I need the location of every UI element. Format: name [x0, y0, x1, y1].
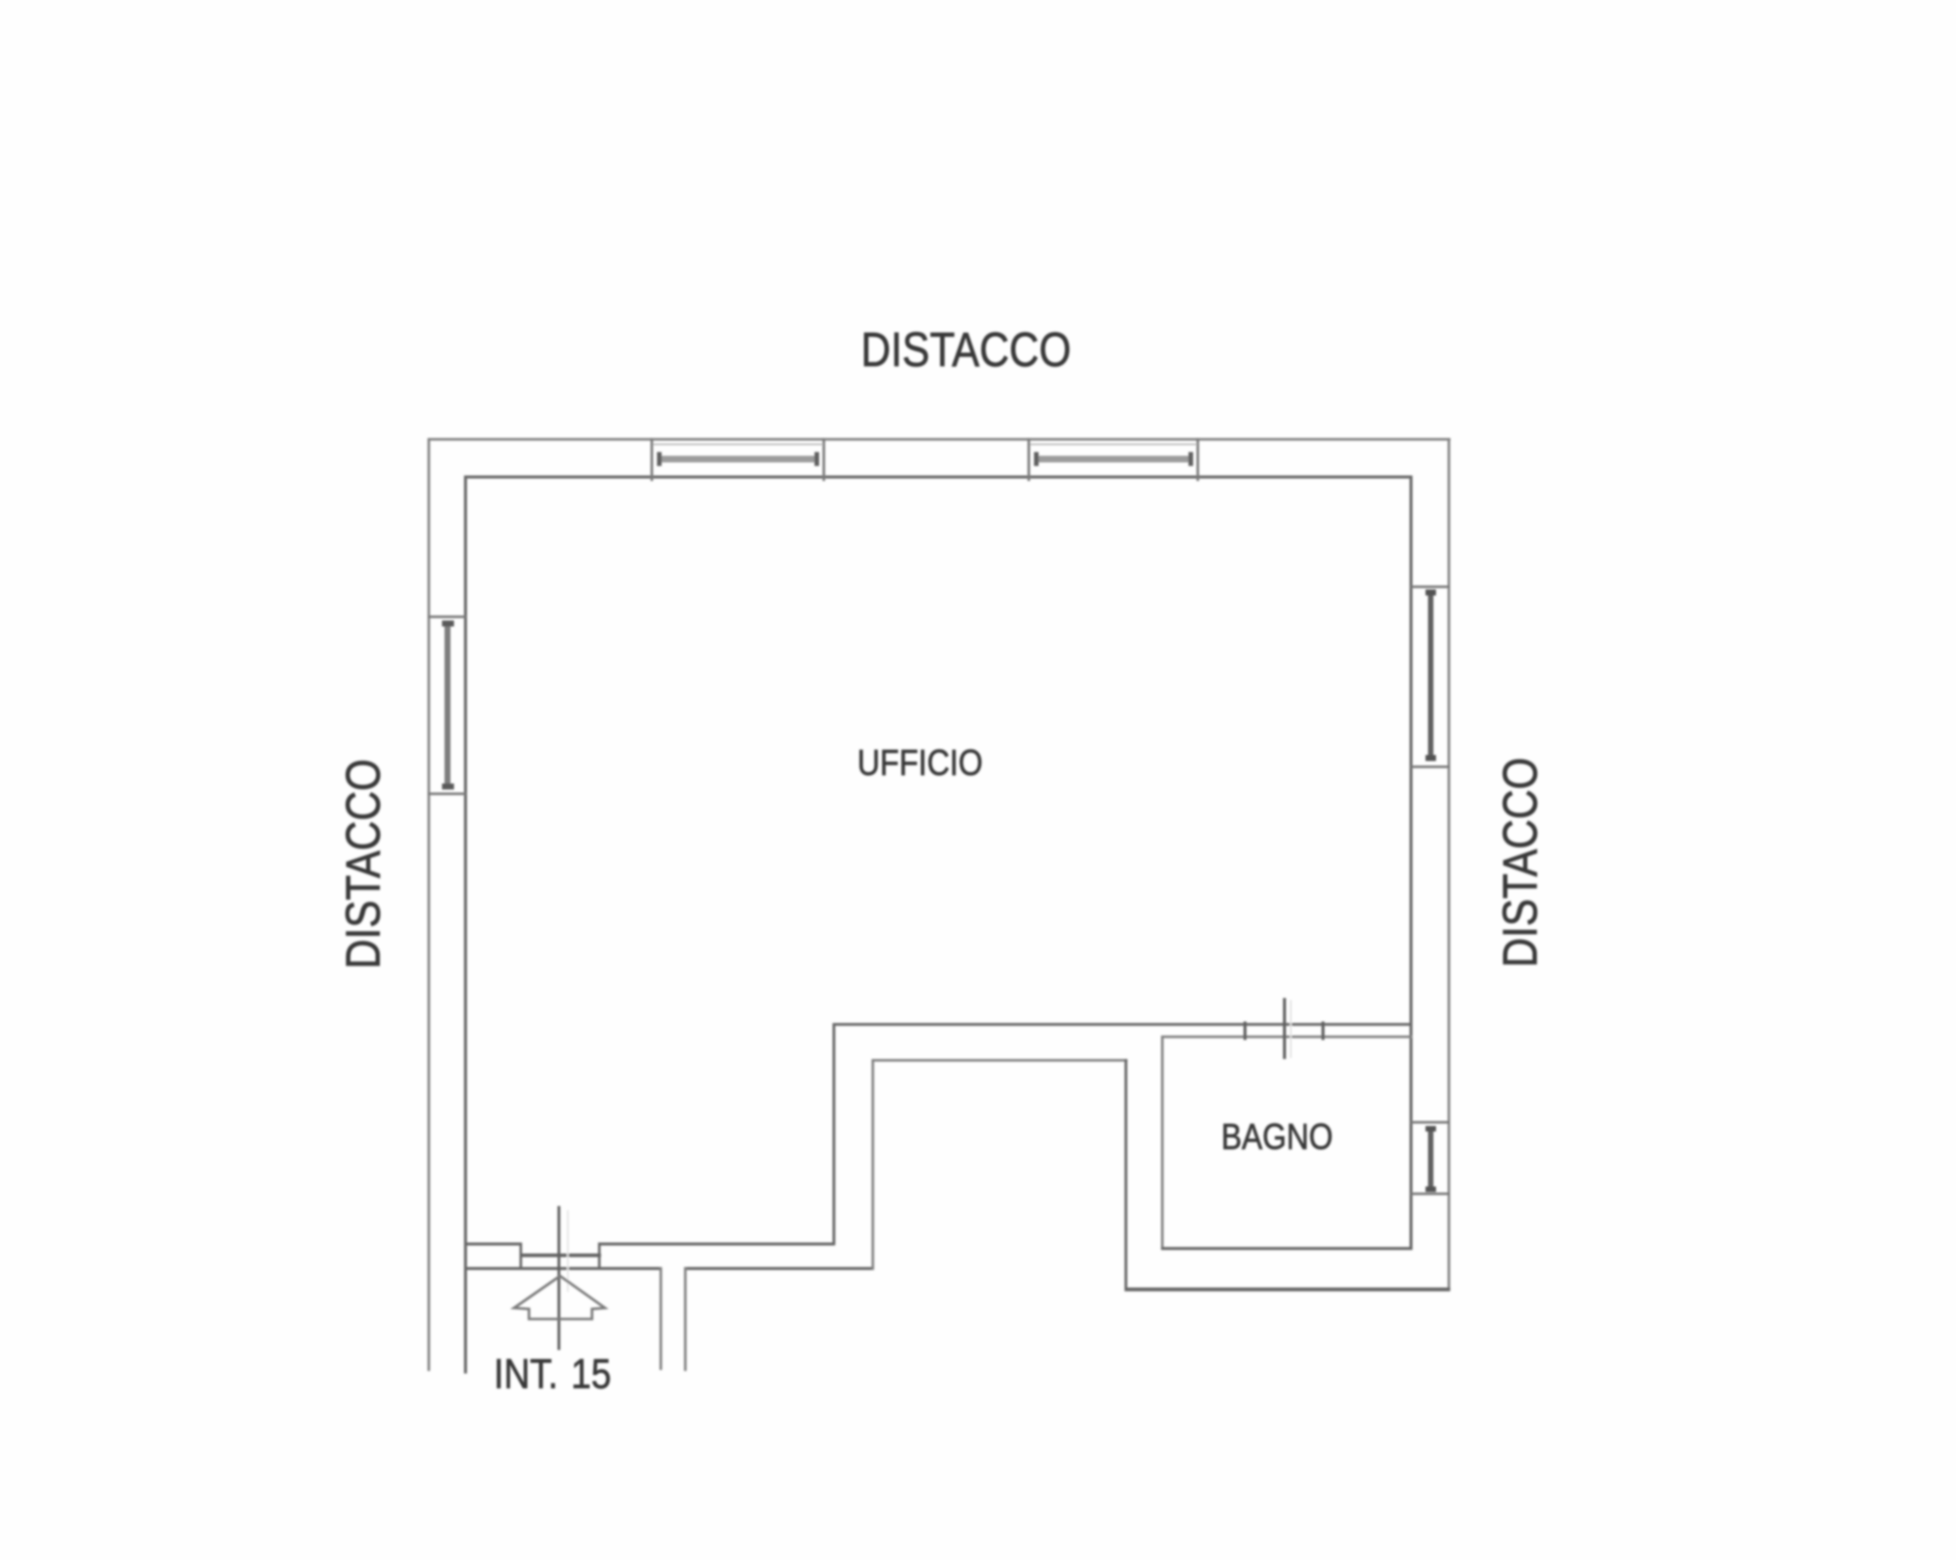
svg-text:DISTACCO: DISTACCO — [1494, 757, 1548, 967]
svg-text:UFFICIO: UFFICIO — [857, 743, 983, 784]
svg-text:DISTACCO: DISTACCO — [861, 323, 1071, 377]
svg-text:INT. 15: INT. 15 — [494, 1352, 611, 1398]
svg-text:DISTACCO: DISTACCO — [337, 759, 391, 969]
svg-text:BAGNO: BAGNO — [1221, 1118, 1333, 1158]
